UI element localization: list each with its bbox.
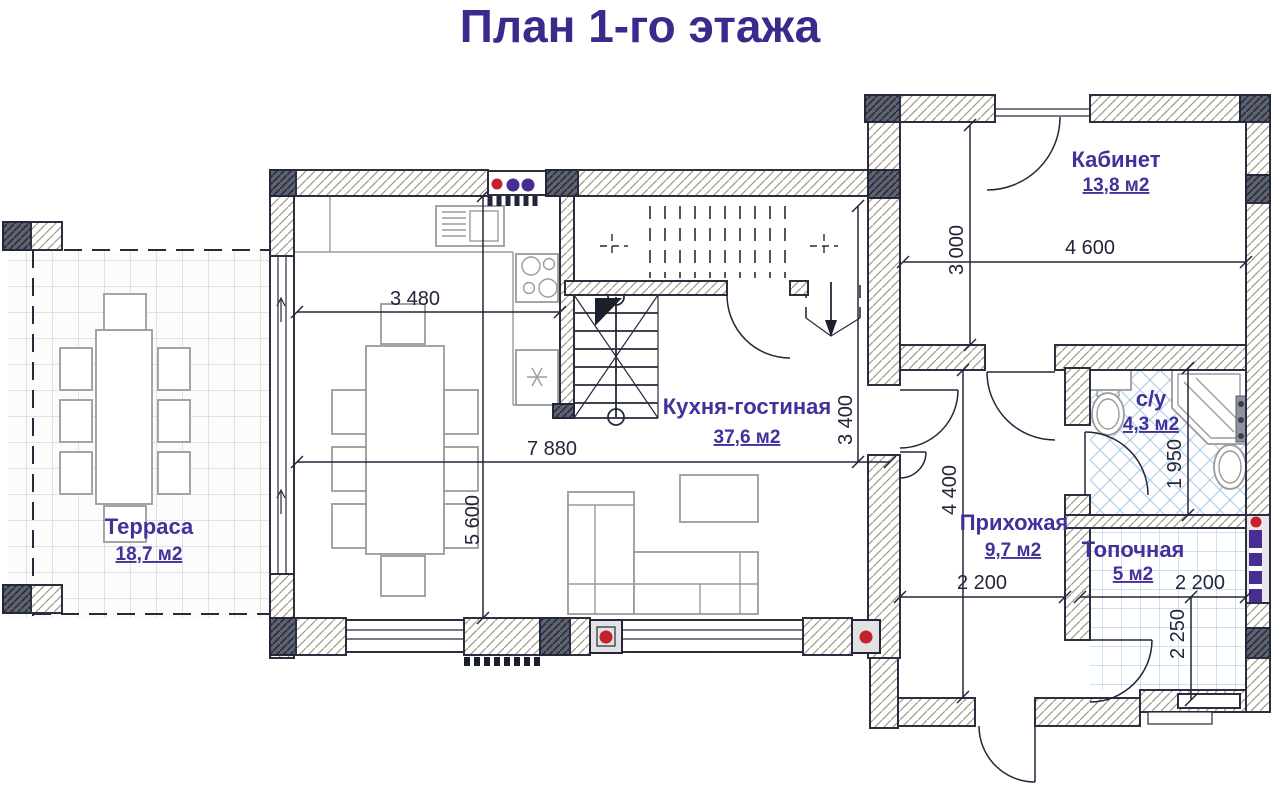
dimension-label: 2 250	[1167, 609, 1189, 659]
room-label-office: Кабинет 13,8 м2	[1071, 147, 1160, 196]
room-area: 4,3 м2	[1123, 414, 1179, 435]
terrace-window	[270, 256, 294, 574]
dimension-label: 3 400	[835, 395, 857, 445]
terrace-steps-marks	[467, 657, 537, 666]
washbasin-icon	[1214, 445, 1246, 489]
dimension-label: 3 480	[390, 288, 440, 310]
dimension-label: 7 880	[527, 438, 577, 460]
dimension-label: 4 600	[1065, 237, 1115, 259]
entrance-step	[1148, 712, 1212, 724]
room-name: Кухня-гостиная	[663, 394, 832, 419]
living-window-1	[346, 620, 464, 652]
room-name: Прихожая	[960, 510, 1069, 535]
room-name: Топочная	[1082, 537, 1185, 562]
room-name: Кабинет	[1071, 147, 1160, 172]
room-name: с/у	[1136, 386, 1167, 411]
floor-plan: 3 480 7 880 5 600 3 400 3 000 4 600 1 95…	[0, 0, 1280, 787]
dimension-label: 4 400	[939, 465, 961, 515]
coffee-table	[680, 475, 758, 522]
dimension-label: 1 950	[1164, 439, 1186, 489]
dimension-label: 5 600	[462, 495, 484, 545]
radiator-marker-2	[852, 620, 880, 653]
room-name: Терраса	[105, 514, 194, 539]
room-area: 13,8 м2	[1083, 175, 1150, 196]
room-area: 37,6 м2	[714, 427, 781, 448]
living-window-2	[622, 620, 803, 652]
door-entrance	[979, 726, 1035, 782]
dimension-label: 2 200	[957, 572, 1007, 594]
dimension-label: 3 000	[946, 225, 968, 275]
page-title: План 1-го этажа	[460, 0, 821, 52]
room-area: 5 м2	[1113, 564, 1153, 585]
kitchen-sink-icon	[436, 206, 504, 246]
room-area: 9,7 м2	[985, 540, 1041, 561]
room-area: 18,7 м2	[116, 544, 183, 565]
stove-icon	[516, 254, 558, 302]
floor-plan-page: 3 480 7 880 5 600 3 400 3 000 4 600 1 95…	[0, 0, 1280, 787]
boiler-window	[1178, 694, 1240, 708]
dimension-label: 2 200	[1175, 572, 1225, 594]
radiator-marker-1	[590, 620, 622, 653]
fridge-cabinet-icon	[516, 350, 558, 405]
